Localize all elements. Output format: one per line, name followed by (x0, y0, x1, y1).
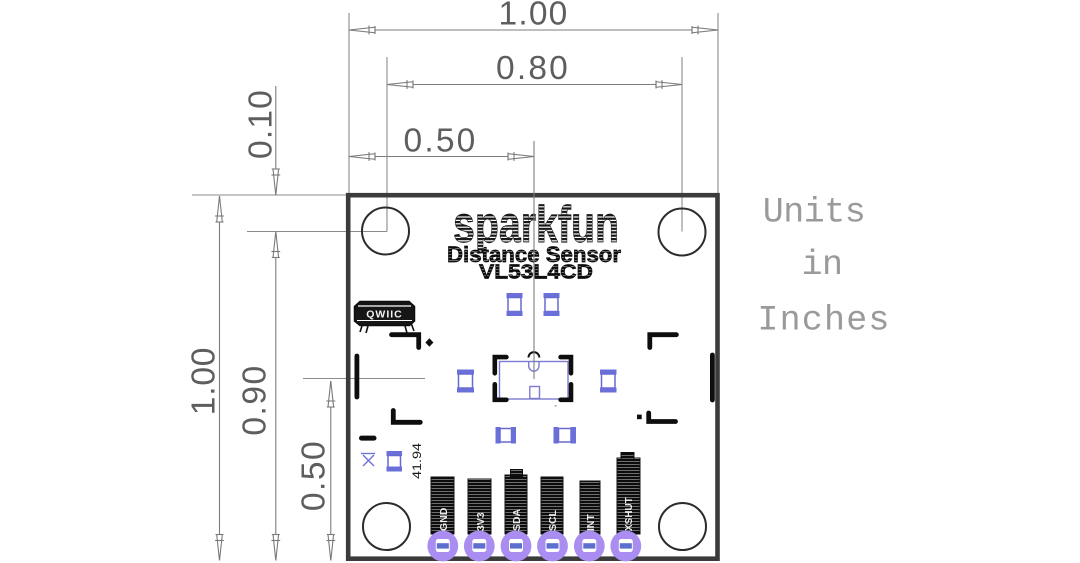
svg-text:QWIIC: QWIIC (366, 309, 403, 321)
svg-text:1.00: 1.00 (498, 0, 568, 33)
svg-text:INT: INT (585, 514, 597, 532)
svg-text:0.90: 0.90 (237, 364, 274, 435)
svg-text:XSHUT: XSHUT (624, 497, 635, 531)
svg-text:3V3: 3V3 (475, 512, 487, 531)
svg-text:SDA: SDA (511, 508, 523, 531)
svg-text:0.50: 0.50 (296, 440, 333, 511)
svg-text:VL53L4CD: VL53L4CD (479, 262, 593, 284)
svg-text:0.80: 0.80 (496, 50, 570, 87)
svg-text:1.00: 1.00 (186, 347, 223, 415)
svg-text:Units: Units (763, 193, 866, 233)
svg-text:0.10: 0.10 (243, 89, 280, 159)
svg-text:0.50: 0.50 (403, 123, 477, 160)
svg-text:41.94: 41.94 (410, 443, 424, 479)
svg-text:in: in (801, 245, 842, 285)
svg-text:SCL: SCL (547, 509, 559, 531)
svg-text:GND: GND (438, 507, 450, 531)
svg-text:Inches: Inches (757, 301, 890, 341)
